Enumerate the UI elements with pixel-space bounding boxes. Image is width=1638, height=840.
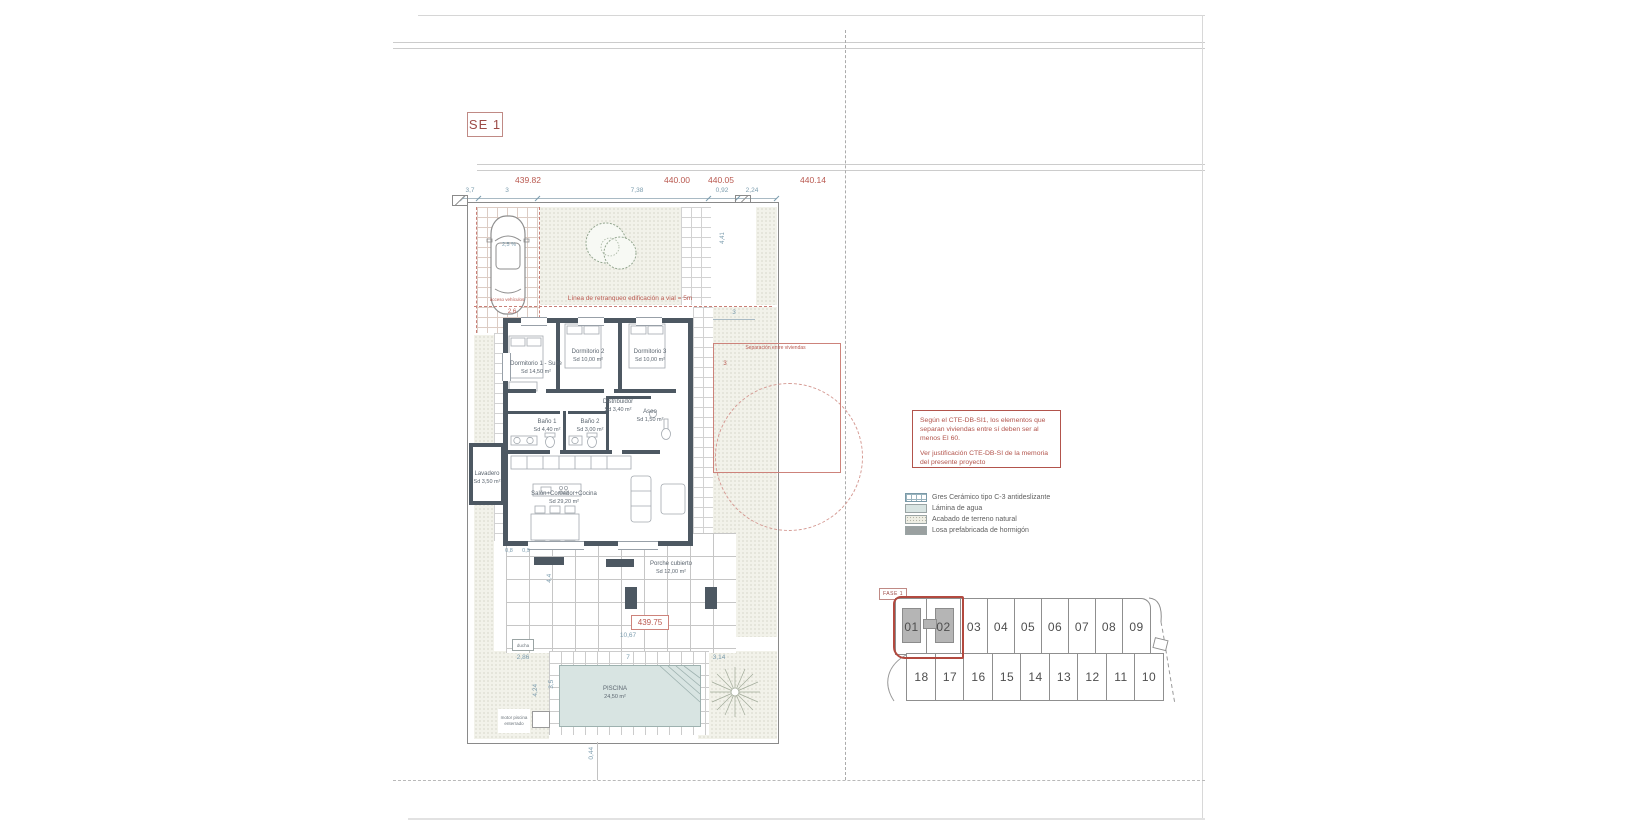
plot-cell: 04 (987, 598, 1015, 655)
plot-number: 13 (1057, 670, 1071, 684)
plot-number: 07 (1075, 620, 1089, 634)
interior-wall (614, 389, 676, 393)
car-width-label: 2,6 (502, 309, 522, 315)
dim-label: 7 (618, 655, 638, 662)
plot-number: 18 (914, 670, 928, 684)
legend-item: Lámina de agua (905, 504, 982, 513)
plot-cell: 03 (960, 598, 988, 655)
pool-name: PISCINA (560, 686, 670, 694)
plot-cell: 05 (1014, 598, 1042, 655)
dim-label: 0,92 (707, 188, 737, 195)
window (636, 317, 662, 326)
plot-number: 16 (971, 670, 985, 684)
interior-wall (560, 450, 612, 454)
plot-cell: 11 (1106, 653, 1136, 701)
sheet-border-line (393, 42, 1205, 49)
room-area: Sd 14,50 m² (508, 369, 564, 376)
setback-label: Línea de retranqueo edificación a vial =… (544, 295, 716, 302)
room-label-bano2: Baño 2 Sd 3,00 m² (568, 419, 612, 434)
separation-label: Separación entre viviendas (718, 345, 833, 351)
interior-wall (508, 389, 536, 393)
porch-slab-edge (606, 559, 634, 567)
dim-label: 2,86 (508, 655, 538, 662)
benchmark-icon (452, 195, 468, 206)
legend-swatch-water (905, 504, 927, 513)
dim-label: 7,38 (622, 188, 652, 195)
room-name: Salón+Comedor+Cocina (516, 491, 612, 499)
interior-wall (508, 411, 560, 414)
laundry-room: Lavadero Sd 3,50 m² (469, 443, 505, 505)
room-label-bano1: Baño 1 Sd 4,40 m² (524, 419, 570, 434)
plot-plan: 2,5 % acceso vehículos 2,6 4,41 4,8 % Lí… (467, 202, 779, 744)
legend-swatch-concrete (905, 526, 927, 535)
dim-label: 3 (724, 310, 744, 317)
dimension-line (597, 742, 598, 780)
shower-box: ducha (512, 639, 534, 651)
porch-column (705, 587, 717, 609)
elevation-label: 440.05 (697, 175, 745, 185)
room-label-dorm1: Dormitorio 1 - Suite Sd 14,50 m² (508, 361, 564, 376)
window (578, 317, 604, 326)
tree-icon (706, 663, 764, 721)
room-area: Sd 12,00 m² (640, 569, 702, 576)
dim-label: 3,14 (704, 655, 734, 662)
room-area: Sd 29,20 m² (516, 499, 612, 506)
interior-wall (546, 389, 604, 393)
room-area: Sd 10,00 m² (560, 357, 616, 364)
terrace-level-box: 439.75 (631, 615, 669, 630)
plot-number: 17 (943, 670, 957, 684)
legend-label: Lámina de agua (932, 505, 982, 512)
plot-number: 11 (1114, 670, 1127, 684)
room-name: Dormitorio 3 (622, 349, 678, 357)
elevation-label: 439.82 (504, 175, 552, 185)
room-name: Baño 2 (568, 419, 612, 427)
pool-motor-box (532, 711, 550, 728)
plot-cell: 17 (935, 653, 965, 701)
sheet-border-line (477, 164, 1205, 171)
dim-label: 0,9 (518, 549, 534, 555)
phase-outline (893, 596, 964, 659)
plot-number: 15 (1000, 670, 1014, 684)
sheet-title: SE 1 (469, 117, 501, 132)
room-label-aseo: Aseo Sd 1,50 m² (626, 409, 674, 424)
site-boundary (1145, 592, 1185, 707)
sofa-icon (631, 476, 651, 522)
car-icon (484, 211, 532, 319)
sliding-door (618, 541, 658, 550)
sheet-boundary-dashed (393, 780, 1205, 781)
tree-icon (580, 217, 644, 279)
plot-number: 03 (967, 620, 981, 634)
room-name: Porche cubierto (640, 561, 702, 569)
dim-label: 3,7 (455, 188, 485, 195)
legend-label: Acabado de terreno natural (932, 516, 1017, 523)
dim-label: 0,8 (501, 549, 517, 555)
kitchen-counter-icon (511, 456, 631, 469)
setback-line (474, 306, 772, 307)
sliding-door (528, 541, 584, 550)
room-name: Distribuidor (586, 399, 650, 407)
porch-slab-edge (534, 557, 564, 565)
legend-label: Losa prefabricada de hormigón (932, 527, 1029, 534)
dim-label: 4,24 (533, 678, 540, 702)
dim-label: 3 (492, 188, 522, 195)
window (521, 317, 547, 326)
room-label-porche: Porche cubierto Sd 12,00 m² (640, 561, 702, 576)
plot-cell: 18 (906, 653, 937, 701)
gravel-area (756, 207, 777, 305)
dim-tick (774, 196, 780, 202)
drawing-sheet: SE 1 439.82 440.00 440.05 440.14 3,7 3 7… (0, 0, 1638, 840)
note-paragraph: Ver justificación CTE-DB-SI de la memori… (920, 449, 1053, 467)
plot-cell: 08 (1095, 598, 1123, 655)
room-name: Dormitorio 1 - Suite (508, 361, 564, 369)
plot-cell: 06 (1041, 598, 1069, 655)
room-name: Aseo (626, 409, 674, 417)
interior-wall (508, 450, 550, 454)
access-label: acceso vehículos (486, 297, 528, 302)
plot-cell: 13 (1049, 653, 1079, 701)
path-tiles (681, 207, 711, 305)
separation-outline: Separación entre viviendas (713, 343, 841, 473)
dim-label: 4,4 (547, 568, 554, 588)
room-name: Dormitorio 2 (560, 349, 616, 357)
room-area: Sd 3,50 m² (473, 479, 501, 486)
dim-label: 0,44 (589, 741, 596, 765)
legend-swatch-tile (905, 493, 927, 502)
pool: PISCINA 24,50 m² (559, 665, 701, 727)
sheet-title-box: SE 1 (467, 112, 503, 137)
dim-label: 10,67 (608, 633, 648, 640)
room-area: Sd 10,00 m² (622, 357, 678, 364)
plot-number: 12 (1085, 670, 1099, 684)
note-paragraph: Según el CTE-DB-SI1, los elementos que s… (920, 416, 1053, 444)
plot-cell: 14 (1020, 653, 1051, 701)
plot-cell: 16 (963, 653, 994, 701)
legend-item: Losa prefabricada de hormigón (905, 526, 1029, 535)
sheet-border-line (1202, 15, 1203, 820)
room-area: Sd 1,50 m² (626, 417, 674, 424)
pool-area: 24,50 m² (560, 694, 670, 701)
regulation-note-box: Según el CTE-DB-SI1, los elementos que s… (912, 410, 1061, 468)
elevation-label: 440.14 (789, 175, 837, 185)
plot-number: 09 (1129, 620, 1143, 634)
site-boundary (878, 653, 910, 705)
dim-label: 3,5 (549, 674, 556, 694)
terrace-level: 439.75 (638, 618, 662, 627)
dimension-line (713, 319, 755, 320)
room-name: Lavadero (473, 471, 501, 479)
sheet-border-line (418, 15, 1205, 16)
armchair-icon (661, 484, 685, 514)
dimension-line (462, 198, 777, 199)
plot-number: 08 (1102, 620, 1116, 634)
room-area: Sd 3,00 m² (568, 427, 612, 434)
legend-swatch-terrain (905, 515, 927, 524)
dining-table-icon (531, 506, 579, 546)
plot-number: 05 (1021, 620, 1035, 634)
porch-column (625, 587, 637, 609)
legend-item: Acabado de terreno natural (905, 515, 1017, 524)
pool-motor-label: motor piscina enterrado (498, 709, 530, 733)
sheet-fold-line (845, 30, 846, 780)
plot-number: 14 (1028, 670, 1042, 684)
plot-number: 04 (994, 620, 1008, 634)
room-name: Baño 1 (524, 419, 570, 427)
dim-label: 3 (718, 361, 732, 367)
plot-cell: 12 (1077, 653, 1108, 701)
legend-label: Gres Cerámico tipo C-3 antideslizante (932, 494, 1050, 501)
plot-number: 06 (1048, 620, 1062, 634)
sheet-border-line (408, 818, 1205, 820)
elevation-label: 440.00 (653, 175, 701, 185)
plot-cell: 07 (1068, 598, 1096, 655)
room-area: Sd 4,40 m² (524, 427, 570, 434)
shower-label: ducha (517, 643, 529, 648)
room-label-dorm3: Dormitorio 3 Sd 10,00 m² (622, 349, 678, 364)
plot-cell: 15 (992, 653, 1022, 701)
dim-label: 4,41 (720, 226, 726, 250)
room-label-salon: Salón+Comedor+Cocina Sd 29,20 m² (516, 491, 612, 506)
interior-wall (622, 450, 660, 454)
dim-label: 2,24 (737, 188, 767, 195)
room-label-dorm2: Dormitorio 2 Sd 10,00 m² (560, 349, 616, 364)
legend-item: Gres Cerámico tipo C-3 antideslizante (905, 493, 1050, 502)
car-slope-label: 2,5 % (498, 243, 520, 249)
